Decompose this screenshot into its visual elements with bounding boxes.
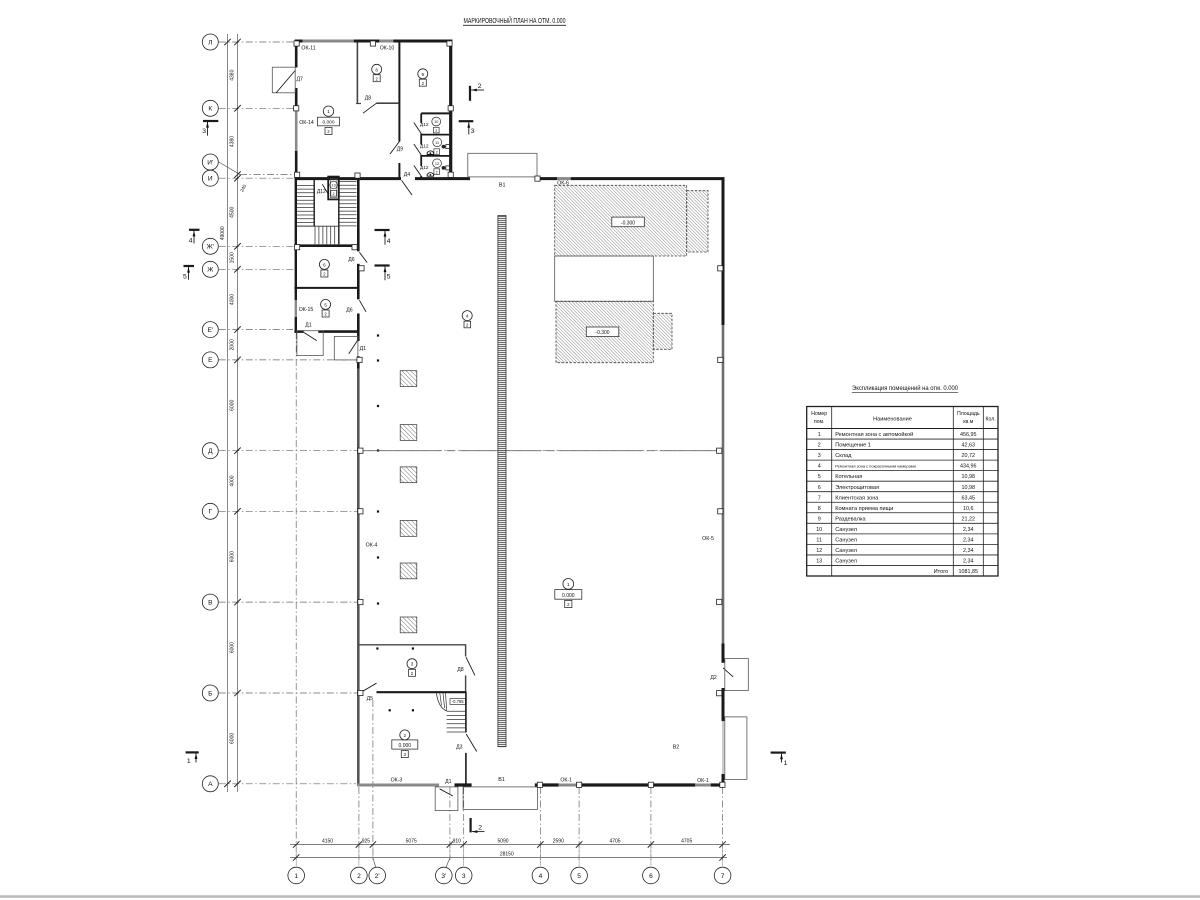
svg-text:6000: 6000 [230,551,236,562]
svg-text:4: 4 [466,314,469,319]
svg-text:А: А [208,781,213,788]
svg-text:4000: 4000 [230,475,236,486]
svg-text:ОК-1: ОК-1 [697,778,709,784]
svg-text:Д2: Д2 [710,675,717,681]
svg-text:6000: 6000 [230,642,236,653]
svg-text:0.000: 0.000 [399,743,412,749]
svg-text:Д12: Д12 [420,122,429,128]
svg-text:5: 5 [183,274,187,281]
svg-text:Д12: Д12 [317,189,326,195]
svg-text:9: 9 [818,516,821,522]
svg-text:МАРКИРОВОЧНЫЙ ПЛАН НА ОТМ. 0.0: МАРКИРОВОЧНЫЙ ПЛАН НА ОТМ. 0.000 [464,16,566,25]
svg-text:4500: 4500 [230,207,236,218]
svg-text:4705: 4705 [681,838,692,844]
svg-text:8: 8 [375,67,378,72]
svg-text:ОК-10: ОК-10 [380,46,395,52]
svg-text:И': И' [207,159,213,166]
svg-text:4: 4 [189,238,193,245]
svg-text:10,98: 10,98 [962,485,976,491]
svg-text:1081,85: 1081,85 [959,569,979,575]
svg-text:Площадь: Площадь [957,411,980,417]
svg-text:0.000: 0.000 [322,120,334,126]
svg-text:Е': Е' [207,327,213,334]
svg-text:5090: 5090 [497,838,508,844]
svg-text:2': 2' [375,873,380,880]
svg-text:В: В [208,599,213,606]
svg-text:12: 12 [816,548,822,554]
svg-text:Д: Д [208,448,213,455]
svg-text:Д8: Д8 [457,667,464,673]
svg-text:Ж: Ж [207,267,213,274]
svg-text:Ж': Ж' [207,244,214,251]
svg-text:6000: 6000 [230,733,236,744]
svg-text:28150: 28150 [500,851,514,857]
svg-text:1: 1 [567,582,570,588]
svg-text:63,45: 63,45 [962,495,976,501]
svg-text:Ремонтная зона с покрасочными: Ремонтная зона с покрасочными камерами [835,464,916,469]
svg-text:Д12: Д12 [420,165,429,171]
svg-text:434,96: 434,96 [960,464,977,470]
svg-text:2,34: 2,34 [963,537,974,543]
svg-text:9: 9 [422,72,425,77]
svg-text:2,34: 2,34 [963,548,974,554]
svg-text:4380: 4380 [230,136,236,147]
svg-text:1500: 1500 [230,252,236,263]
svg-text:Раздевалка: Раздевалка [835,516,866,522]
svg-text:В2: В2 [673,745,680,751]
svg-text:Комната приема пищи: Комната приема пищи [835,506,893,512]
svg-text:Санузел: Санузел [835,559,857,565]
svg-text:Экспликация помещений на отм.: Экспликация помещений на отм. 0.000 [852,384,958,392]
svg-text:1: 1 [327,109,330,114]
svg-text:Д7: Д7 [296,77,303,83]
svg-text:Д3: Д3 [456,744,463,750]
svg-text:13: 13 [331,184,335,188]
svg-text:1: 1 [294,873,298,880]
svg-text:3: 3 [818,453,821,459]
svg-text:2: 2 [478,83,482,90]
svg-text:В1: В1 [498,777,505,783]
svg-text:6: 6 [649,873,653,880]
svg-text:3: 3 [462,873,466,880]
svg-text:5075: 5075 [406,838,417,844]
svg-text:4380: 4380 [230,69,236,80]
svg-text:Санузел: Санузел [835,537,857,543]
svg-text:49000: 49000 [220,226,226,240]
svg-text:ОК-5: ОК-5 [702,536,714,542]
svg-text:ОК-4: ОК-4 [366,542,378,548]
svg-text:6000: 6000 [230,400,236,411]
svg-text:456,95: 456,95 [960,432,977,438]
svg-text:3: 3 [471,128,475,135]
svg-text:К: К [208,106,212,113]
svg-text:11: 11 [816,537,822,543]
svg-text:1: 1 [187,758,191,765]
svg-text:910: 910 [453,838,462,844]
svg-text:кв.м: кв.м [963,419,973,425]
svg-text:5: 5 [818,474,821,480]
svg-text:2590: 2590 [553,838,564,844]
svg-text:Д1: Д1 [360,346,367,352]
svg-text:6: 6 [818,485,821,491]
svg-text:-0.300: -0.300 [621,220,635,226]
svg-text:10,6: 10,6 [963,506,974,512]
svg-text:пом.: пом. [814,419,825,425]
svg-text:ОК-3: ОК-3 [391,778,403,784]
svg-text:5: 5 [324,302,327,307]
svg-text:2: 2 [436,170,438,174]
svg-text:Ремонтная зона с автомойкой: Ремонтная зона с автомойкой [835,431,913,438]
svg-text:3: 3 [411,662,414,667]
svg-text:2: 2 [435,129,437,133]
svg-text:Д12: Д12 [420,143,429,149]
svg-text:4150: 4150 [322,838,333,844]
svg-text:-0.785: -0.785 [452,699,465,704]
svg-text:4: 4 [539,873,543,880]
svg-text:20,72: 20,72 [962,453,976,459]
svg-text:Е: Е [208,357,213,364]
svg-text:Д6: Д6 [348,257,355,263]
svg-text:21,22: 21,22 [962,516,976,522]
svg-text:2: 2 [478,825,482,832]
svg-text:1: 1 [818,432,821,438]
svg-text:Д9: Д9 [397,146,404,152]
svg-text:Б: Б [208,690,212,697]
svg-text:Д8: Д8 [365,96,372,102]
svg-text:ОК-15: ОК-15 [299,307,314,313]
svg-text:4: 4 [387,238,391,245]
svg-text:925: 925 [362,838,371,844]
svg-text:Д6: Д6 [346,307,353,313]
svg-text:2: 2 [357,873,361,880]
svg-text:8: 8 [818,506,821,512]
svg-text:6: 6 [323,262,326,267]
svg-text:5: 5 [387,274,391,281]
svg-text:Д1: Д1 [445,779,452,785]
svg-text:2: 2 [333,192,335,196]
svg-text:10,98: 10,98 [962,474,976,480]
svg-text:13: 13 [816,559,822,565]
svg-text:3: 3 [202,128,206,135]
svg-text:Д4: Д4 [404,172,411,178]
svg-text:2,34: 2,34 [963,527,974,533]
svg-text:Электрощитовая: Электрощитовая [835,485,879,491]
svg-text:2,34: 2,34 [963,559,974,565]
svg-text:Клиентская зона: Клиентская зона [835,495,879,501]
svg-text:0.000: 0.000 [562,593,575,599]
svg-text:11: 11 [435,141,439,145]
svg-text:Помещение 1: Помещение 1 [835,443,871,449]
svg-text:5: 5 [577,873,581,880]
svg-text:4705: 4705 [609,838,620,844]
svg-text:Котельная: Котельная [835,474,862,480]
svg-text:В1: В1 [499,183,506,189]
svg-text:-0.300: -0.300 [595,330,609,336]
svg-text:ОК-14: ОК-14 [299,120,314,126]
svg-text:И: И [208,176,213,183]
svg-text:Д5: Д5 [367,696,374,702]
svg-text:ОК-1: ОК-1 [560,778,572,784]
svg-text:7: 7 [818,495,821,501]
svg-text:7: 7 [721,873,725,880]
svg-text:Санузел: Санузел [835,548,857,554]
svg-text:Г: Г [209,509,213,516]
svg-text:2: 2 [404,733,407,738]
svg-text:2: 2 [818,443,821,449]
svg-text:Л: Л [208,39,212,46]
svg-text:2000: 2000 [230,339,236,350]
svg-text:4000: 4000 [230,294,236,305]
svg-text:42,63: 42,63 [962,443,976,449]
svg-text:10: 10 [434,120,438,124]
svg-text:Номер: Номер [811,411,827,417]
svg-text:4: 4 [818,464,821,470]
svg-text:Санузел: Санузел [835,527,857,533]
svg-text:Кол.: Кол. [986,416,996,422]
svg-text:3': 3' [441,873,446,880]
svg-text:Д1: Д1 [305,322,312,328]
svg-text:2: 2 [436,150,438,154]
svg-text:ОК-11: ОК-11 [301,46,315,52]
svg-text:Наименование: Наименование [873,416,912,422]
svg-text:10: 10 [816,527,822,533]
svg-text:1: 1 [784,760,788,767]
svg-text:12: 12 [435,162,439,166]
svg-text:Итого: Итого [934,569,949,575]
svg-text:Склад: Склад [835,453,852,459]
